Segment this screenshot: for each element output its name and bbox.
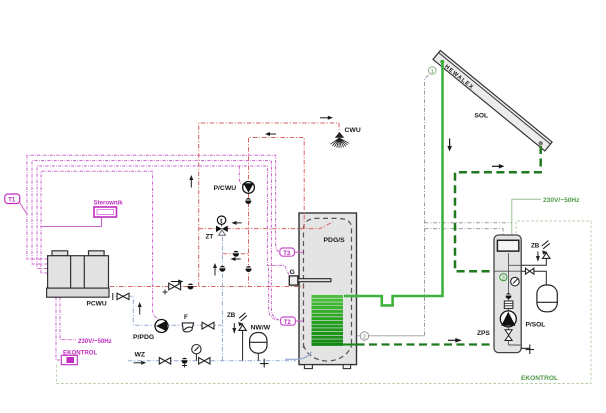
svg-text:T2: T2 [284,320,292,326]
svg-text:PCWU: PCWU [87,301,107,308]
svg-text:ZB: ZB [531,243,540,250]
svg-text:T1: T1 [8,198,16,204]
svg-text:P/PDG: P/PDG [133,334,154,341]
svg-text:WZ: WZ [135,352,146,359]
svg-text:1: 1 [431,69,434,75]
svg-text:P/CWU: P/CWU [214,185,237,192]
svg-text:ZPS: ZPS [477,330,490,337]
svg-text:EKONTROL: EKONTROL [521,375,558,382]
svg-text:3: 3 [502,276,505,282]
svg-text:F: F [184,314,188,321]
svg-text:P/SOL: P/SOL [526,322,546,329]
svg-text:CWU: CWU [345,127,361,134]
svg-text:230V/~50Hz: 230V/~50Hz [543,197,580,204]
svg-text:ZB: ZB [227,312,236,319]
svg-text:T3: T3 [283,251,291,257]
svg-text:G: G [290,269,295,276]
svg-text:ZT: ZT [206,234,214,241]
svg-text:2: 2 [363,335,366,341]
svg-text:SOL: SOL [475,113,489,120]
svg-text:230V/~50Hz: 230V/~50Hz [78,338,112,345]
svg-text:NW/W: NW/W [251,325,271,332]
svg-text:Sterownik: Sterownik [94,199,124,206]
svg-text:PDG/S: PDG/S [324,237,346,244]
